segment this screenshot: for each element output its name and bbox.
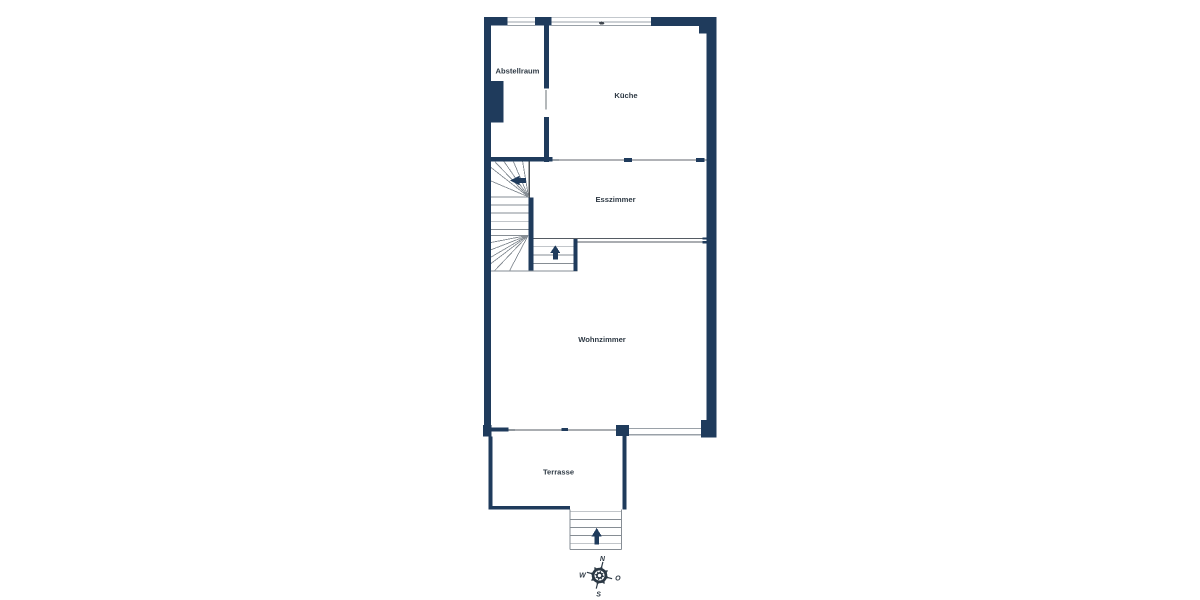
svg-text:Küche: Küche	[614, 91, 637, 100]
svg-text:Terrasse: Terrasse	[543, 468, 574, 477]
svg-text:Wohnzimmer: Wohnzimmer	[578, 335, 626, 344]
svg-text:Abstellraum: Abstellraum	[496, 66, 540, 75]
svg-text:Esszimmer: Esszimmer	[595, 195, 635, 204]
svg-text:S: S	[596, 591, 601, 598]
svg-text:O: O	[615, 575, 621, 582]
